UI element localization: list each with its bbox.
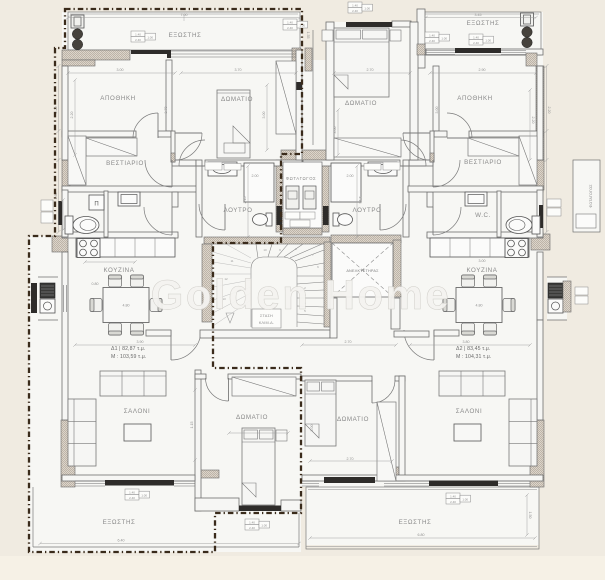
svg-text:1.00: 1.00 xyxy=(141,494,147,498)
svg-text:ΔΩΜΑΤΙΟ: ΔΩΜΑΤΙΟ xyxy=(337,416,369,423)
svg-text:11: 11 xyxy=(230,259,233,263)
svg-text:3.00: 3.00 xyxy=(262,112,266,119)
svg-text:Golden Home: Golden Home xyxy=(151,271,452,318)
svg-text:2.40: 2.40 xyxy=(135,38,141,42)
svg-text:2.20: 2.20 xyxy=(70,112,74,119)
svg-text:ΚΛΙΜ.Δ.: ΚΛΙΜ.Δ. xyxy=(259,321,274,325)
svg-text:4.80: 4.80 xyxy=(476,304,483,308)
svg-text:ΚΟΥΖΙΝΑ: ΚΟΥΖΙΝΑ xyxy=(467,267,498,274)
svg-text:2.40: 2.40 xyxy=(129,496,135,500)
svg-text:1.40: 1.40 xyxy=(249,520,255,524)
svg-text:2.15: 2.15 xyxy=(243,197,247,204)
svg-text:2.20: 2.20 xyxy=(547,107,551,114)
svg-text:3.70: 3.70 xyxy=(164,107,168,114)
svg-text:3.00: 3.00 xyxy=(435,107,439,114)
svg-text:2.20: 2.20 xyxy=(531,117,535,124)
svg-text:Δ1 | 82,87 τ.μ.: Δ1 | 82,87 τ.μ. xyxy=(111,346,145,352)
svg-text:2.40: 2.40 xyxy=(429,39,435,43)
svg-text:3.00: 3.00 xyxy=(479,259,486,263)
svg-text:W.C.: W.C. xyxy=(475,212,491,219)
svg-text:ΦΩΤΑΓΩΓΟΣ: ΦΩΤΑΓΩΓΟΣ xyxy=(286,176,317,181)
svg-text:1.00: 1.00 xyxy=(261,524,267,528)
svg-text:3.45: 3.45 xyxy=(475,13,482,17)
svg-text:Π: Π xyxy=(94,202,98,208)
svg-text:3.00: 3.00 xyxy=(117,68,124,72)
svg-text:2.00: 2.00 xyxy=(347,174,354,178)
svg-text:ΣΑΛΟΝΙ: ΣΑΛΟΝΙ xyxy=(124,408,151,415)
svg-text:3.80: 3.80 xyxy=(463,340,470,344)
svg-text:1.40: 1.40 xyxy=(450,494,456,498)
svg-text:ΚΟΥΖΙΝΑ: ΚΟΥΖΙΝΑ xyxy=(104,267,135,274)
svg-text:1.50: 1.50 xyxy=(528,512,532,519)
svg-text:6.80: 6.80 xyxy=(418,533,425,537)
svg-text:1.40: 1.40 xyxy=(287,20,293,24)
svg-text:ΔΩΜΑΤΙΟ: ΔΩΜΑΤΙΟ xyxy=(221,96,253,103)
svg-text:ΛΟΥΤΡΟ: ΛΟΥΤΡΟ xyxy=(352,207,381,214)
svg-text:1.15: 1.15 xyxy=(190,422,194,429)
svg-text:2.70: 2.70 xyxy=(345,340,352,344)
svg-text:1.00: 1.00 xyxy=(364,7,370,11)
svg-text:3.70: 3.70 xyxy=(235,68,242,72)
svg-text:1.40: 1.40 xyxy=(429,33,435,37)
svg-text:2.70: 2.70 xyxy=(347,457,354,461)
svg-text:ΕΞΩΣΤΗΣ: ΕΞΩΣΤΗΣ xyxy=(399,519,432,526)
svg-text:ΕΞΩΣΤΗΣ: ΕΞΩΣΤΗΣ xyxy=(103,519,136,526)
svg-text:ΣΑΛΟΝΙ: ΣΑΛΟΝΙ xyxy=(456,408,483,415)
svg-text:1.40: 1.40 xyxy=(135,32,141,36)
svg-text:0.80: 0.80 xyxy=(92,282,99,286)
svg-text:3.90: 3.90 xyxy=(137,340,144,344)
svg-text:ΑΠΟΘΗΚΗ: ΑΠΟΘΗΚΗ xyxy=(457,95,493,102)
svg-text:1.40: 1.40 xyxy=(473,35,479,39)
svg-text:2.40: 2.40 xyxy=(473,41,479,45)
svg-text:ΑΠΟΘΗΚΗ: ΑΠΟΘΗΚΗ xyxy=(100,95,136,102)
svg-text:3.00: 3.00 xyxy=(310,425,314,432)
svg-text:2.70: 2.70 xyxy=(367,68,374,72)
svg-text:ΔΩΜΑΤΙΟ: ΔΩΜΑΤΙΟ xyxy=(345,100,377,107)
svg-text:2.90: 2.90 xyxy=(479,68,486,72)
svg-text:1.00: 1.00 xyxy=(462,498,468,502)
svg-text:10: 10 xyxy=(263,248,267,252)
svg-text:2.40: 2.40 xyxy=(249,526,255,530)
svg-text:2.15: 2.15 xyxy=(358,197,362,204)
svg-text:ΒΕΣΤΙΑΡΙΟ: ΒΕΣΤΙΑΡΙΟ xyxy=(106,160,144,167)
svg-text:ΒΕΣΤΙΑΡΙΟ: ΒΕΣΤΙΑΡΙΟ xyxy=(464,159,502,166)
svg-text:2.40: 2.40 xyxy=(287,26,293,30)
svg-text:1.35: 1.35 xyxy=(306,32,310,39)
svg-text:ΦΩΤΑΓΩΓΟΣ: ΦΩΤΑΓΩΓΟΣ xyxy=(589,184,593,208)
svg-text:1.00: 1.00 xyxy=(147,36,153,40)
svg-text:Μ : 103,59 τ.μ.: Μ : 103,59 τ.μ. xyxy=(111,354,146,360)
svg-text:1.00: 1.00 xyxy=(485,39,491,43)
svg-text:2.40: 2.40 xyxy=(352,9,358,13)
svg-text:1.40: 1.40 xyxy=(352,3,358,7)
svg-text:ΕΞΩΣΤΗΣ: ΕΞΩΣΤΗΣ xyxy=(467,20,500,27)
svg-text:Μ : 104,31 τ.μ.: Μ : 104,31 τ.μ. xyxy=(456,354,491,360)
svg-text:2.00: 2.00 xyxy=(252,174,259,178)
svg-text:2.40: 2.40 xyxy=(450,500,456,504)
svg-text:4.80: 4.80 xyxy=(123,304,130,308)
svg-text:ΔΩΜΑΤΙΟ: ΔΩΜΑΤΙΟ xyxy=(236,414,268,421)
svg-text:Δ2 | 83,45 τ.μ.: Δ2 | 83,45 τ.μ. xyxy=(456,346,490,352)
svg-text:ΛΟΥΤΡΟ: ΛΟΥΤΡΟ xyxy=(223,207,252,214)
svg-text:3.00: 3.00 xyxy=(333,127,337,134)
svg-text:6.40: 6.40 xyxy=(118,539,125,543)
svg-text:1.40: 1.40 xyxy=(129,490,135,494)
svg-text:ΕΞΩΣΤΗΣ: ΕΞΩΣΤΗΣ xyxy=(169,32,202,39)
svg-text:1.00: 1.00 xyxy=(441,37,447,41)
